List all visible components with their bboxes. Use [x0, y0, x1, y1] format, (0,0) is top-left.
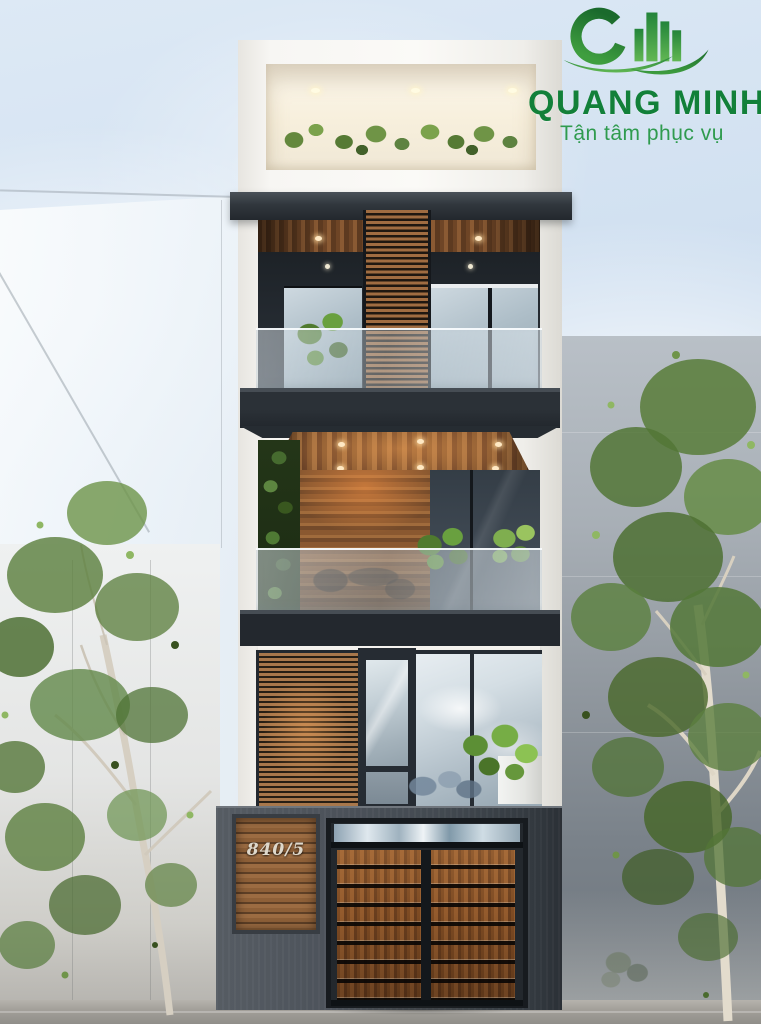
gate-leaf-left	[337, 850, 421, 1004]
rooftop-downlight	[311, 88, 320, 93]
rooftop-downlight	[508, 88, 517, 93]
neighbor-right-seam	[544, 576, 761, 577]
gate-leaf-right	[431, 850, 515, 1004]
wall-panel-seam	[150, 560, 151, 1000]
gate-center-post	[421, 850, 431, 1004]
house-number: 840/5	[232, 840, 320, 860]
window-top-rail	[430, 284, 538, 288]
brand-tagline: Tận tâm phục vụ	[560, 122, 724, 146]
ceiling-downlight	[417, 439, 424, 444]
brand-name: QUANG MINH	[528, 84, 761, 123]
planter-leaves	[448, 712, 546, 792]
ceiling-downlight	[338, 442, 345, 447]
floor2-glass-balustrade	[256, 548, 542, 614]
house-number-plate	[232, 814, 320, 934]
floor1-window-glass	[366, 660, 408, 766]
floor3-glass-balustrade	[256, 328, 542, 392]
neighbor-right-seam	[544, 432, 761, 433]
floor2-slab-fascia	[240, 610, 560, 646]
wall-panel-seam	[72, 560, 73, 1000]
neighbor-right-seam	[544, 732, 761, 733]
ceiling-downlight	[315, 236, 322, 241]
neighbor-left-corner-edge	[221, 200, 222, 548]
rooftop-planter	[272, 104, 530, 164]
wall-light	[325, 264, 330, 269]
architectural-render: 840/5	[0, 0, 761, 1024]
ceiling-downlight	[495, 442, 502, 447]
quang-minh-logo-icon	[562, 2, 710, 80]
floor1-louver-screen	[256, 650, 366, 814]
gate-transom-glass	[334, 824, 520, 842]
neighbor-wall-left-lower	[0, 544, 220, 1006]
floor3-slab-fascia	[240, 388, 560, 428]
rooftop-downlight	[411, 88, 420, 93]
gate-top-rail	[331, 842, 523, 848]
gate-ground-shadow	[300, 1006, 540, 1016]
wall-light	[468, 264, 473, 269]
ceiling-downlight	[475, 236, 482, 241]
background-shrub	[588, 932, 664, 1000]
